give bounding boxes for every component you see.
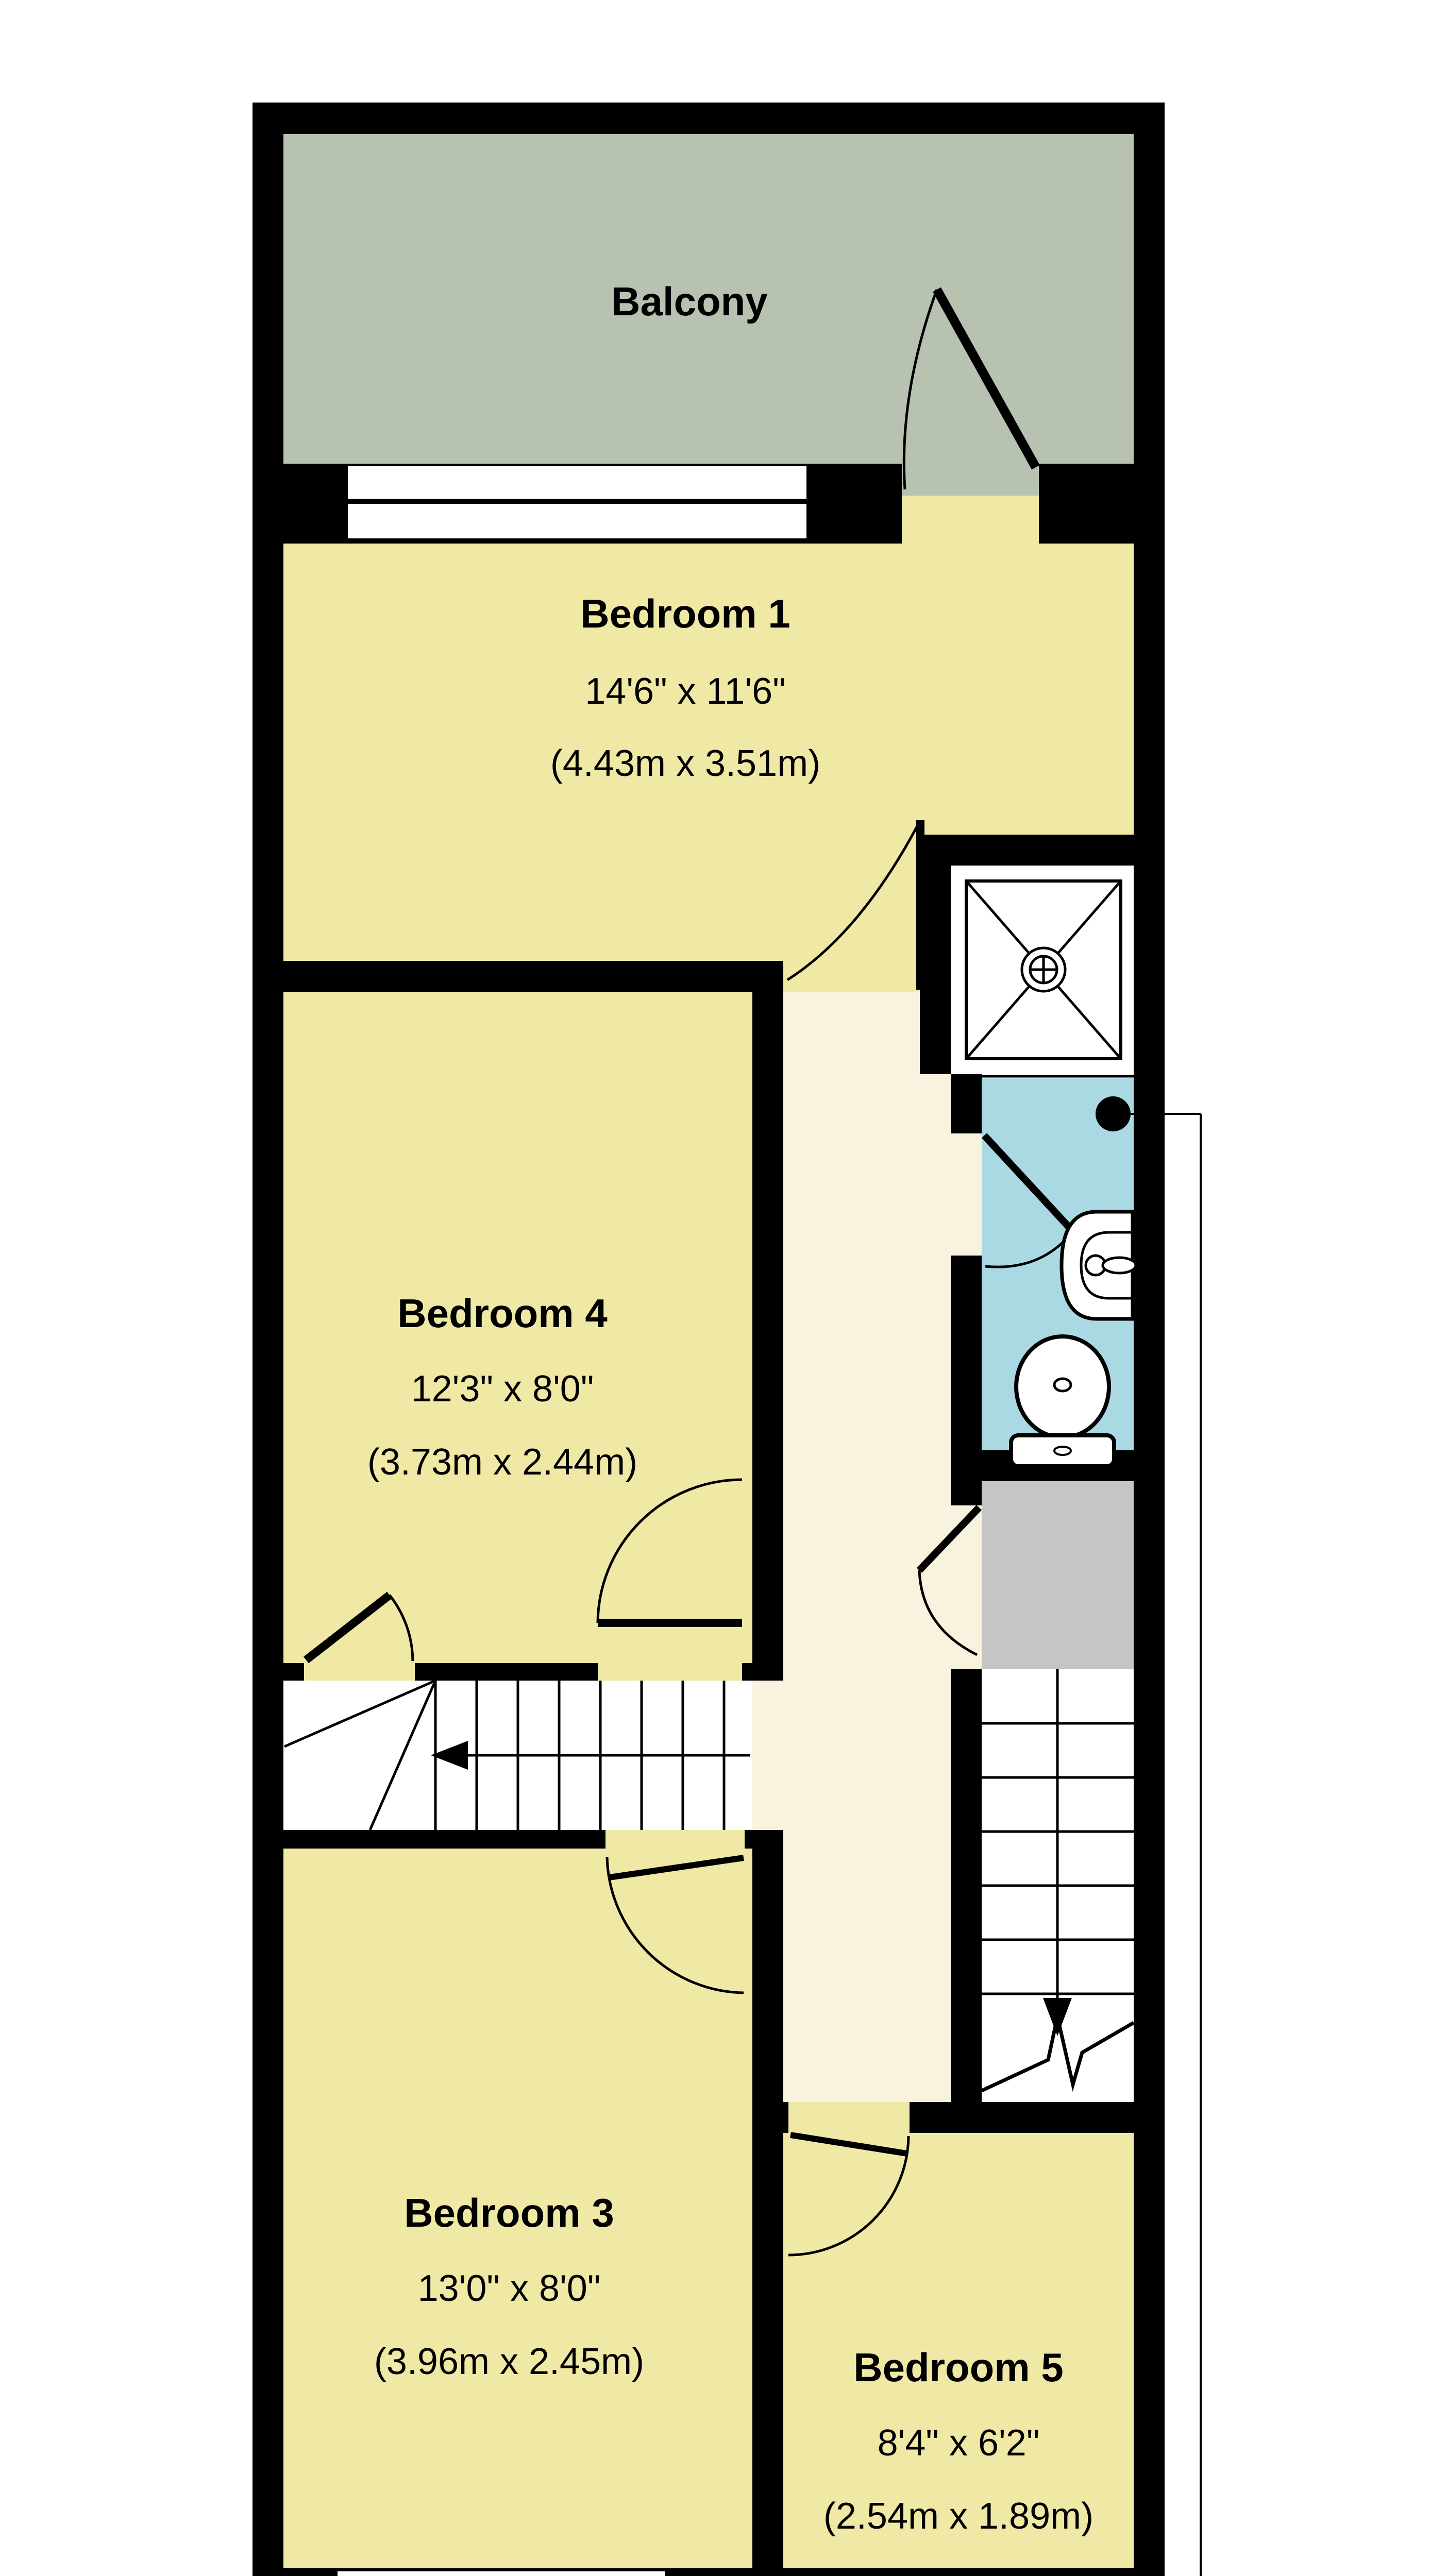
basin-icon [1062, 1212, 1136, 1319]
floor-plan-drawing: Shower Room 10'8" x 2'10" (3.24m x 0.87m… [0, 0, 1447, 2576]
opening-bedroom1-hall [783, 961, 920, 992]
bedroom4-size-metric: (3.73m x 2.44m) [367, 1442, 637, 1483]
floor-plan-page: Shower Room 10'8" x 2'10" (3.24m x 0.87m… [0, 0, 1447, 2576]
bedroom1-size-metric: (4.43m x 3.51m) [550, 743, 820, 784]
hallway-stair-gap [752, 1681, 783, 1830]
wall-shower-top [920, 835, 1134, 866]
bedroom1-size-imperial: 14'6" x 11'6" [585, 671, 786, 712]
opening-balcony-upper [902, 464, 1039, 496]
bedroom4-name: Bedroom 4 [397, 1291, 607, 1336]
wall-bedroom4-right [752, 992, 783, 1663]
wall-stairs-bottom-b [745, 1830, 783, 1849]
toilet-cistern-button [1054, 1447, 1071, 1455]
balcony-window-pane-bottom [348, 504, 806, 538]
balcony-window-pane-top [348, 466, 806, 499]
wall-outer-right [1134, 103, 1165, 2576]
callout-leader-line [1177, 1114, 1201, 2576]
wall-hall-bathroom-upper [951, 1074, 982, 1133]
opening-bathroom-hall [951, 1133, 982, 1256]
wall-outer-top [253, 103, 1165, 134]
shower-cubicle [951, 881, 1134, 1076]
balcony-label: Balcony [611, 279, 767, 324]
wall-bedroom5-top-a [783, 2102, 788, 2133]
bedroom4-size-imperial: 12'3" x 8'0" [411, 1368, 594, 1410]
wall-stairs-top-c [742, 1663, 783, 1681]
wall-stairs-bottom-a [283, 1830, 605, 1849]
bedroom3-name: Bedroom 3 [404, 2190, 614, 2235]
wall-stairs-top-a [283, 1663, 304, 1681]
toilet-icon [1011, 1336, 1114, 1466]
basin-tap-icon [1103, 1258, 1136, 1273]
wall-hall-stairs [951, 1669, 982, 2102]
wall-bedroom5-top-b [910, 2102, 1165, 2133]
bedroom5-size-metric: (2.54m x 1.89m) [823, 2496, 1093, 2537]
toilet-flush-dot [1054, 1379, 1071, 1391]
bedroom5-name: Bedroom 5 [853, 2345, 1063, 2390]
radiator-dot-icon [1096, 1096, 1131, 1131]
opening-bedroom5-hall [788, 2102, 910, 2133]
wall-bedroom3-right [752, 1849, 783, 2568]
opening-bedroom3-hall [605, 1830, 745, 1849]
bedroom3-window [338, 2571, 665, 2576]
bedroom3-size-metric: (3.96m x 2.45m) [374, 2341, 644, 2382]
wall-outer-left [253, 103, 283, 2576]
landing-area [982, 1481, 1134, 1669]
opening-bedroom4-stairs [304, 1663, 415, 1681]
opening-bedroom4-landing [598, 1663, 742, 1681]
opening-balcony-lower [902, 496, 1039, 544]
hallway-area [783, 992, 951, 2102]
bedroom1-name: Bedroom 1 [580, 591, 790, 636]
bedroom5-size-imperial: 8'4" x 6'2" [878, 2422, 1040, 2464]
wall-stairs-top-b [415, 1663, 598, 1681]
wall-outer-bottom-right [783, 2568, 1165, 2576]
bedroom3-size-imperial: 13'0" x 8'0" [418, 2268, 601, 2309]
wall-hall-bathroom-lower [951, 1256, 982, 1505]
wall-bedroom1-bottom [283, 961, 783, 992]
